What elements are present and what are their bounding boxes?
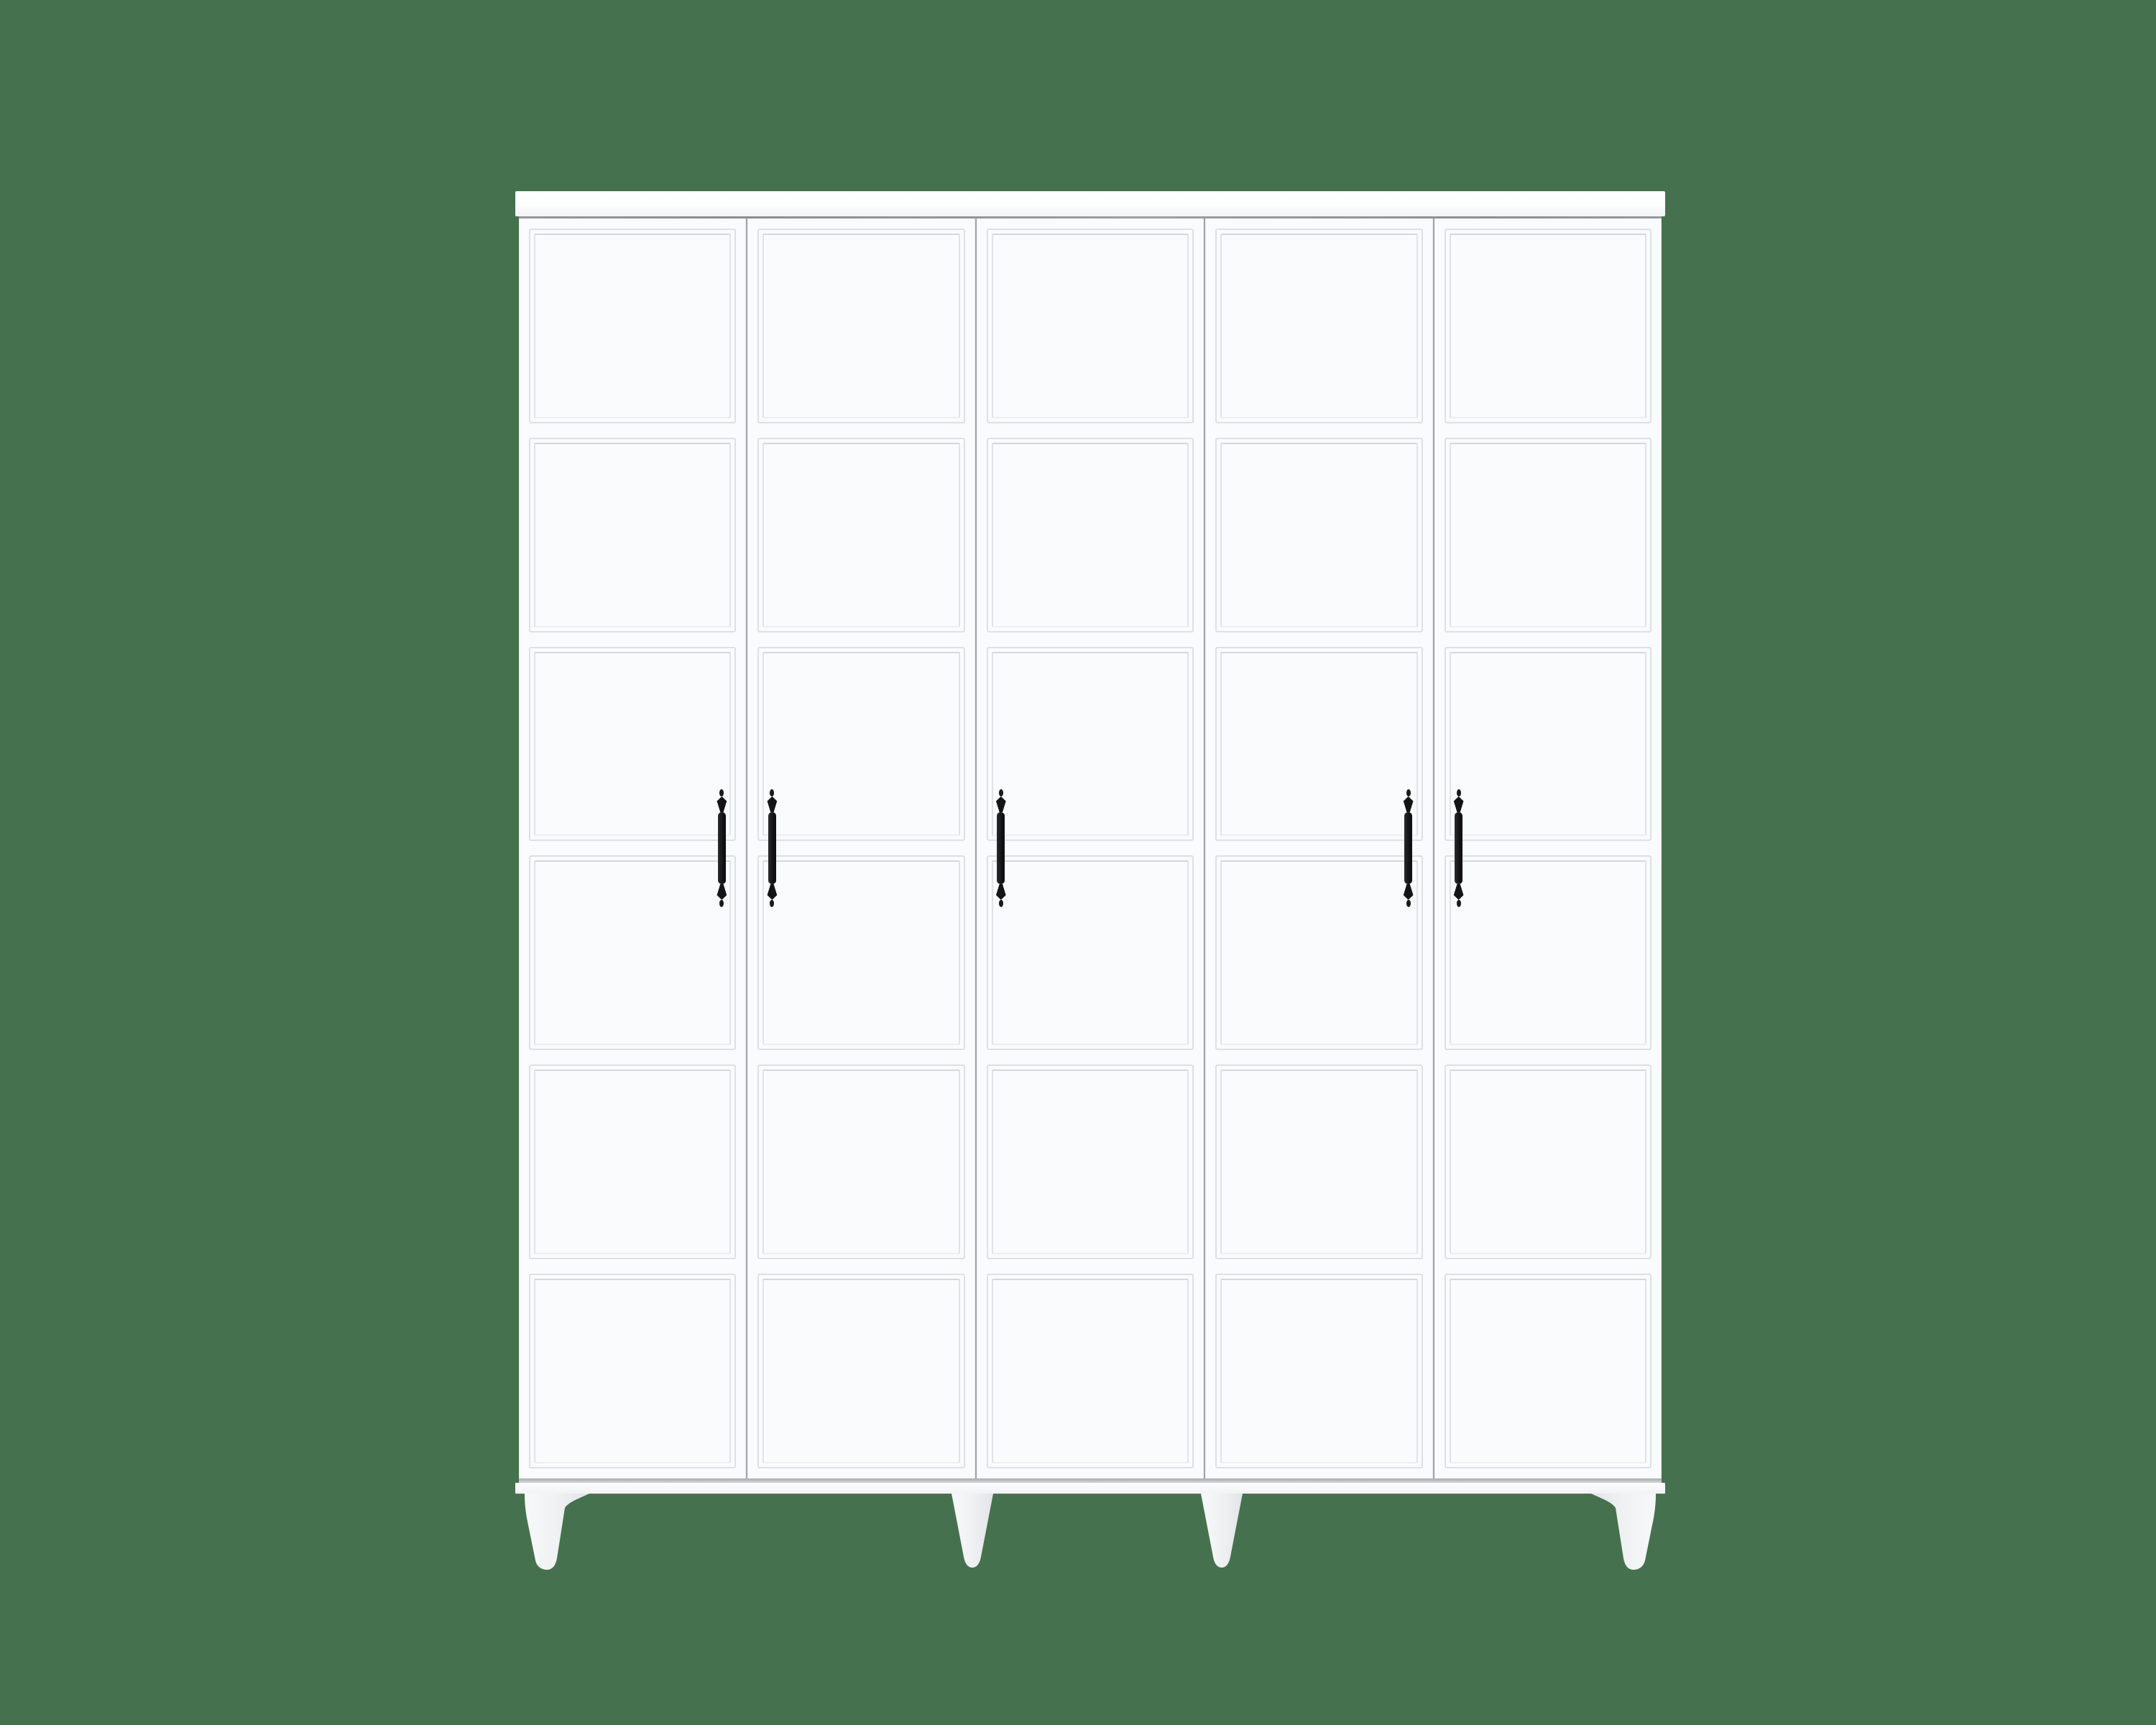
handle-top-finial-tip	[1457, 789, 1461, 796]
handle-bar	[718, 812, 726, 884]
door-panel	[757, 855, 964, 1050]
handle-top-finial	[765, 796, 778, 812]
door-panel	[987, 1064, 1194, 1259]
wardrobe-leg-far-left	[525, 1494, 589, 1573]
door-panel	[987, 855, 1194, 1050]
door-panel	[987, 1274, 1194, 1468]
handle-bottom-finial	[1402, 884, 1415, 900]
door-panel	[1215, 1064, 1422, 1259]
door-panel	[1445, 229, 1651, 423]
door-panel	[1445, 855, 1651, 1050]
handle-bar	[768, 812, 776, 884]
wardrobe-legs	[515, 1494, 1665, 1574]
wardrobe-leg-center-right	[1201, 1494, 1243, 1569]
handle-bottom-finial-tip	[770, 900, 774, 907]
wardrobe-top-board	[515, 191, 1665, 216]
door-panel	[1215, 229, 1422, 423]
door-panel	[529, 1064, 736, 1259]
handle-bottom-finial-tip	[1406, 900, 1411, 907]
handle-bar	[997, 812, 1005, 884]
door-panel	[757, 647, 964, 842]
door-handle	[1451, 789, 1467, 907]
door-panel	[757, 1274, 964, 1468]
door-panel	[987, 438, 1194, 632]
door-panel	[757, 1064, 964, 1259]
wardrobe-plinth	[515, 1483, 1665, 1494]
door-panel	[1445, 438, 1651, 632]
door-panel	[1215, 855, 1422, 1050]
door-handle	[714, 789, 729, 907]
door-panel	[529, 229, 736, 423]
wardrobe-leg-far-right	[1591, 1494, 1656, 1573]
handle-top-finial-tip	[1406, 789, 1411, 796]
wardrobe-door-1	[519, 218, 746, 1478]
wardrobe-door-4	[1205, 218, 1432, 1478]
door-panel	[529, 647, 736, 842]
handle-top-finial	[1452, 796, 1465, 812]
door-handle	[764, 789, 780, 907]
product-stage	[0, 0, 2156, 1725]
handle-top-finial-tip	[999, 789, 1003, 796]
wardrobe-door-5	[1434, 218, 1662, 1478]
handle-bottom-finial-tip	[999, 900, 1003, 907]
wardrobe	[515, 191, 1665, 1574]
door-panel	[1215, 438, 1422, 632]
handle-top-finial	[995, 796, 1008, 812]
handle-top-finial-tip	[770, 789, 774, 796]
wardrobe-doors	[519, 218, 1662, 1478]
wardrobe-leg-center-left	[952, 1494, 993, 1569]
handle-bottom-finial	[715, 884, 728, 900]
door-panel	[529, 1274, 736, 1468]
door-panel	[1215, 647, 1422, 842]
handle-bar	[1404, 812, 1412, 884]
handle-top-finial-tip	[719, 789, 724, 796]
wardrobe-door-3	[977, 218, 1204, 1478]
handle-top-finial	[1402, 796, 1415, 812]
door-panel	[757, 438, 964, 632]
door-handle	[1401, 789, 1416, 907]
door-panel	[1445, 647, 1651, 842]
door-handle	[993, 789, 1009, 907]
handle-bar	[1455, 812, 1462, 884]
door-panel	[1215, 1274, 1422, 1468]
door-panel	[529, 855, 736, 1050]
door-panel	[1445, 1274, 1651, 1468]
door-panel	[757, 229, 964, 423]
door-panel	[529, 438, 736, 632]
handle-bottom-finial	[1452, 884, 1465, 900]
door-panel	[987, 647, 1194, 842]
door-panel	[987, 229, 1194, 423]
handle-bottom-finial-tip	[719, 900, 724, 907]
handle-bottom-finial	[995, 884, 1008, 900]
handle-bottom-finial-tip	[1457, 900, 1461, 907]
handle-top-finial	[715, 796, 728, 812]
door-panel	[1445, 1064, 1651, 1259]
handle-bottom-finial	[765, 884, 778, 900]
wardrobe-door-2	[747, 218, 975, 1478]
